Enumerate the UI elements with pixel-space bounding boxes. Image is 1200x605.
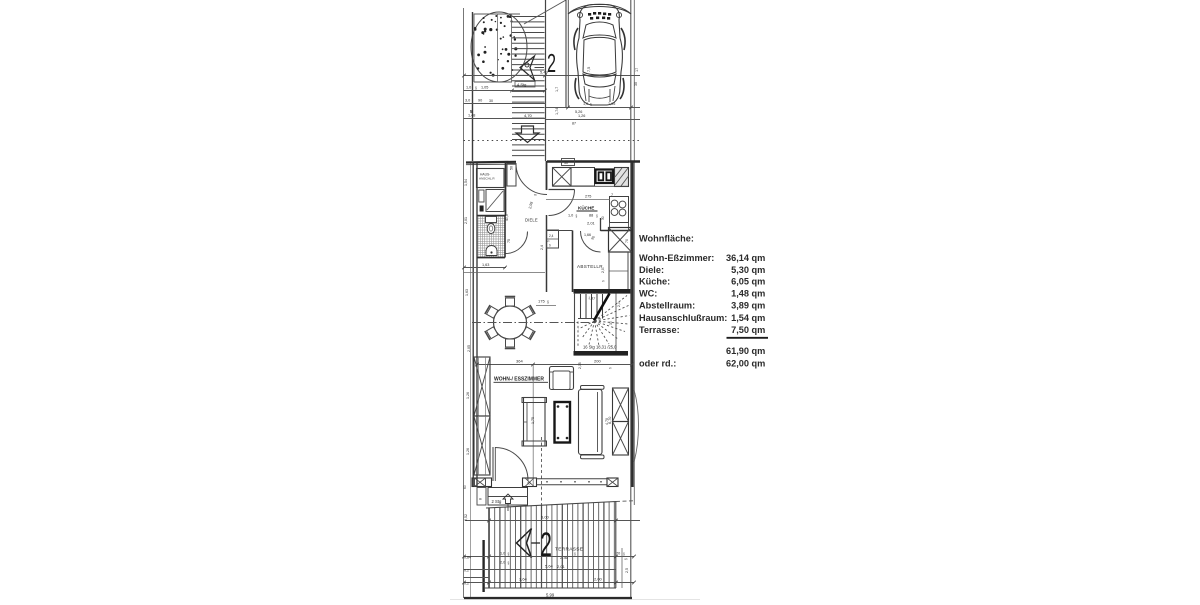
svg-text:5,99: 5,99 (546, 593, 555, 598)
svg-text:2,01: 2,01 (464, 217, 468, 224)
svg-text:87: 87 (572, 122, 576, 126)
svg-text:Wohn-Eßzimmer:: Wohn-Eßzimmer: (639, 253, 714, 263)
svg-text:TERRASSE: TERRASSE (555, 547, 583, 553)
svg-text:1,74: 1,74 (555, 108, 559, 115)
svg-text:175: 175 (538, 299, 545, 304)
svg-text:qm: qm (752, 289, 766, 299)
svg-text:1,66: 1,66 (584, 233, 591, 237)
svg-text:WOHN-/ ESSZIMMER: WOHN-/ ESSZIMMER (494, 377, 544, 383)
svg-text:8: 8 (479, 498, 483, 500)
svg-text:30: 30 (601, 216, 605, 220)
svg-text:Wohnfläche:: Wohnfläche: (639, 234, 694, 244)
svg-text:2: 2 (547, 48, 556, 78)
svg-text:§: § (623, 552, 625, 556)
svg-text:qm: qm (752, 313, 766, 323)
svg-text:qm: qm (752, 346, 766, 356)
svg-text:30: 30 (564, 161, 568, 165)
svg-text:Terrasse:: Terrasse: (639, 325, 680, 335)
svg-text:5,30: 5,30 (731, 265, 749, 275)
svg-text:7,50: 7,50 (731, 325, 749, 335)
svg-text:§: § (624, 558, 628, 560)
svg-text:Hausanschlußraum:: Hausanschlußraum: (639, 313, 727, 323)
svg-text:16 Stg 18,31 /25,0: 16 Stg 18,31 /25,0 (583, 345, 617, 350)
svg-text:KÜCHE: KÜCHE (578, 205, 594, 211)
svg-text:Abstellraum:: Abstellraum: (639, 301, 695, 311)
svg-text:30: 30 (634, 82, 638, 86)
svg-text:88: 88 (589, 214, 593, 218)
svg-text:364: 364 (516, 359, 523, 364)
svg-text:qm: qm (752, 253, 766, 263)
svg-text:qm: qm (752, 265, 766, 275)
svg-text:0,2: 0,2 (464, 569, 469, 573)
svg-text:2,01: 2,01 (557, 564, 566, 569)
svg-text:275: 275 (585, 195, 591, 199)
svg-text:1,0: 1,0 (568, 214, 573, 218)
svg-text:1,48: 1,48 (731, 289, 749, 299)
svg-text:2,36: 2,36 (560, 555, 569, 560)
svg-text:§: § (576, 214, 578, 218)
svg-text:§: § (475, 86, 477, 90)
svg-text:30: 30 (609, 321, 613, 325)
svg-text:70: 70 (616, 552, 620, 556)
svg-text:§: § (547, 300, 549, 304)
svg-text:6,05: 6,05 (731, 277, 749, 287)
svg-text:1,26: 1,26 (578, 114, 585, 118)
svg-text:Küche:: Küche: (639, 277, 670, 287)
svg-text:2 Stg: 2 Stg (492, 499, 502, 504)
svg-text:4,70: 4,70 (524, 113, 533, 118)
svg-text:2,5: 2,5 (625, 568, 629, 573)
svg-text:1,26: 1,26 (466, 448, 470, 455)
svg-text:2,4: 2,4 (549, 234, 554, 238)
svg-text:4,70: 4,70 (605, 418, 609, 425)
svg-text:1,54: 1,54 (464, 179, 468, 186)
svg-text:DIELE: DIELE (525, 218, 538, 223)
svg-text:75: 75 (507, 239, 511, 243)
svg-text:§: § (596, 214, 598, 218)
svg-text:5,49: 5,49 (540, 70, 549, 75)
svg-text:oder rd.:: oder rd.: (639, 358, 676, 368)
svg-text:1,0: 1,0 (466, 86, 471, 90)
svg-text:qm: qm (752, 301, 766, 311)
svg-text:2,0: 2,0 (500, 561, 505, 565)
svg-text:qm: qm (752, 325, 766, 335)
svg-text:1,54: 1,54 (731, 313, 750, 323)
svg-text:1,0: 1,0 (500, 552, 505, 556)
svg-text:1,48: 1,48 (468, 114, 475, 118)
svg-text:§: § (508, 561, 510, 565)
svg-text:1,05: 1,05 (481, 86, 488, 90)
svg-text:2,0: 2,0 (617, 302, 621, 307)
svg-text:qm: qm (752, 277, 766, 287)
svg-text:30: 30 (489, 99, 493, 103)
svg-text:7,5: 7,5 (587, 67, 591, 72)
svg-text:4 Stg: 4 Stg (517, 82, 526, 87)
svg-text:5,26: 5,26 (575, 110, 582, 114)
svg-text:3,0: 3,0 (465, 99, 470, 103)
svg-text:2,05: 2,05 (578, 362, 582, 369)
svg-text:1,75: 1,75 (531, 417, 535, 424)
svg-text:§: § (508, 552, 510, 556)
svg-text:qm: qm (752, 358, 766, 368)
svg-text:200: 200 (594, 359, 601, 364)
svg-text:2,52: 2,52 (464, 514, 468, 521)
svg-text:2: 2 (540, 526, 552, 564)
svg-text:1,7: 1,7 (555, 87, 559, 92)
svg-text:§: § (601, 280, 605, 282)
svg-text:50: 50 (510, 166, 514, 170)
svg-text:62,00: 62,00 (726, 358, 749, 368)
svg-text:5,64: 5,64 (545, 564, 554, 569)
svg-text:Diele:: Diele: (639, 265, 664, 275)
svg-text:1,63: 1,63 (482, 263, 489, 267)
svg-text:3,89: 3,89 (731, 301, 749, 311)
svg-text:17: 17 (635, 68, 639, 72)
svg-text:2,01: 2,01 (587, 221, 596, 226)
svg-text:90: 90 (478, 99, 482, 103)
svg-text:ANSCHL.R: ANSCHL.R (479, 177, 495, 181)
svg-text:70: 70 (625, 239, 629, 243)
svg-text:30: 30 (527, 482, 531, 486)
svg-text:1,26: 1,26 (466, 392, 470, 399)
svg-text:2,0: 2,0 (601, 268, 605, 273)
svg-text:§: § (574, 552, 576, 556)
svg-text:36,14: 36,14 (726, 253, 750, 263)
svg-text:5,00: 5,00 (541, 515, 550, 520)
svg-text:2,00: 2,00 (594, 577, 603, 582)
svg-text:7: 7 (611, 193, 613, 197)
svg-text:60: 60 (463, 485, 467, 489)
svg-text:WC:: WC: (639, 289, 657, 299)
svg-text:0,84: 0,84 (464, 556, 471, 560)
svg-text:1,63: 1,63 (465, 289, 469, 296)
svg-text:3,64: 3,64 (519, 577, 528, 582)
svg-text:2,4: 2,4 (540, 245, 544, 250)
svg-text:61,90: 61,90 (726, 346, 749, 356)
svg-text:2,05: 2,05 (467, 345, 471, 352)
